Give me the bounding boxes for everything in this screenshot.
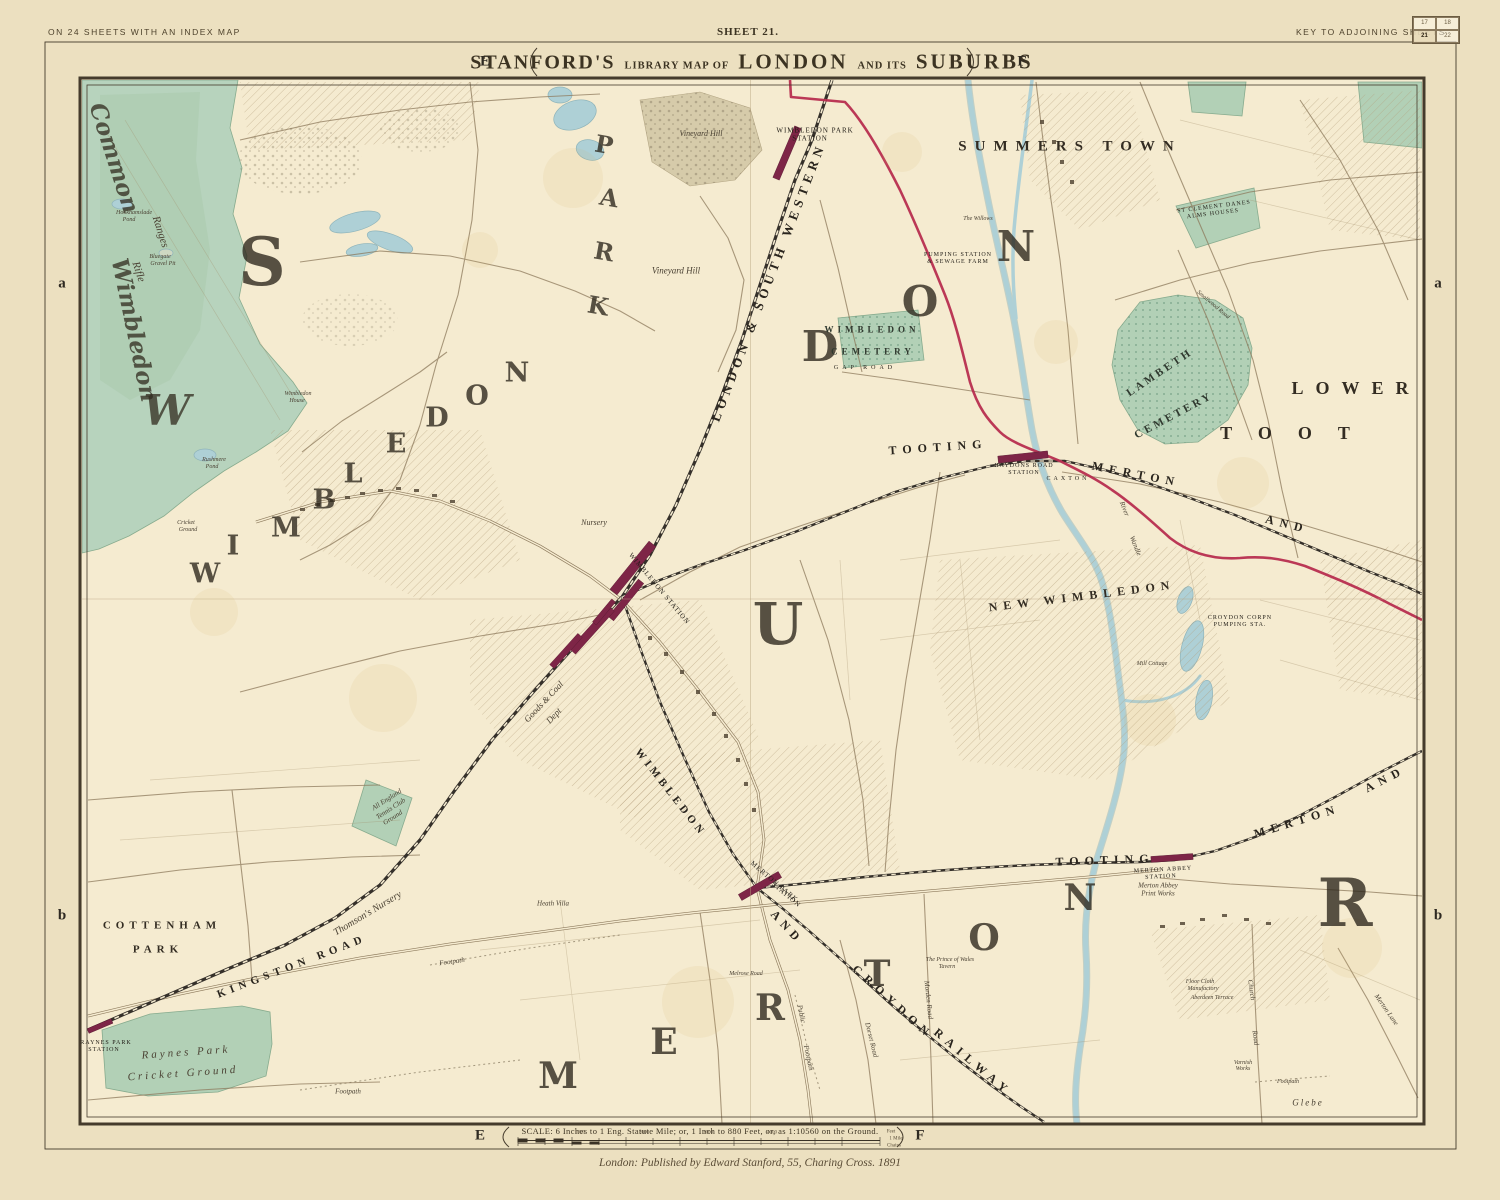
key-cell: 22 — [1436, 30, 1459, 43]
map-title: STANFORD'S LIBRARY MAP OF LONDON AND ITS… — [470, 50, 1033, 75]
small-green-n — [1188, 82, 1246, 116]
sheet-number: SHEET 21. — [717, 26, 779, 38]
adjoining-sheets-key: 17 18 21 22 — [1412, 16, 1460, 44]
grid-letter-e-top: E — [480, 54, 490, 71]
grid-letter-a-left: a — [58, 276, 66, 293]
title-conj: AND ITS — [858, 61, 907, 72]
scale-statement: SCALE: 6 Inches to 1 Eng. Statute Mile; … — [521, 1126, 878, 1136]
grid-letter-b-left: b — [58, 908, 66, 925]
edition-note: ON 24 SHEETS WITH AN INDEX MAP — [48, 27, 241, 37]
grid-letter-a-right: a — [1434, 276, 1442, 293]
key-cell: 18 — [1436, 17, 1459, 30]
title-series: LIBRARY MAP OF — [625, 61, 730, 72]
key-cell-current: 21 — [1413, 30, 1436, 43]
grid-letter-f-top: F — [1017, 54, 1026, 71]
title-publisher: STANFORD'S — [470, 52, 615, 75]
title-suburbs: SUBURBS — [916, 50, 1034, 75]
key-cell: 17 — [1413, 17, 1436, 30]
grid-letter-f-bottom: F — [915, 1128, 924, 1145]
map-sheet: ON 24 SHEETS WITH AN INDEX MAP SHEET 21.… — [0, 0, 1500, 1200]
publisher-imprint: London: Published by Edward Stanford, 55… — [599, 1157, 901, 1169]
map-artwork — [0, 0, 1500, 1200]
title-city: LONDON — [738, 50, 848, 75]
grid-letter-b-right: b — [1434, 908, 1442, 925]
grid-letter-e-bottom: E — [475, 1128, 485, 1145]
